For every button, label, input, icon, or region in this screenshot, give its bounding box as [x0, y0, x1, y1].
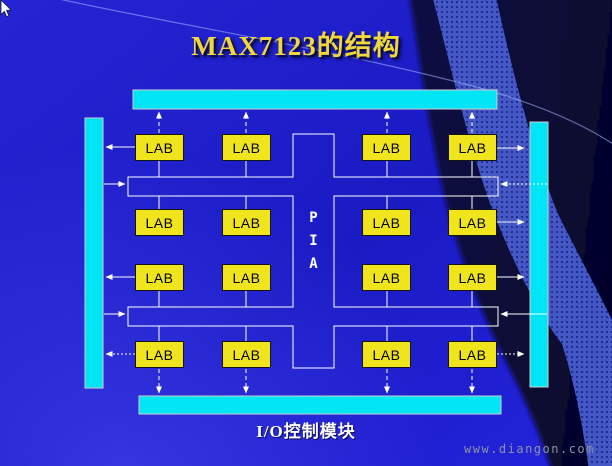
mouse-cursor-icon [0, 0, 14, 19]
lab-block: LAB [448, 209, 497, 236]
slide-title: MAX7123的结构 [96, 24, 496, 60]
left-io-arrows [104, 147, 135, 354]
pia-letter: P [293, 207, 334, 230]
lab-block: LAB [135, 341, 184, 368]
pia-letter: A [293, 253, 334, 276]
watermark-text: www.diangon.com [464, 442, 595, 456]
top-output-arrows [159, 112, 472, 133]
lab-block: LAB [222, 134, 271, 161]
right-io-bar [530, 122, 548, 387]
lab-block: LAB [222, 341, 271, 368]
lab-block: LAB [362, 134, 411, 161]
lab-block: LAB [135, 134, 184, 161]
top-io-bar [133, 90, 497, 109]
bottom-io-bar [139, 396, 501, 414]
left-io-bar [85, 118, 103, 388]
bottom-output-arrows [159, 369, 472, 393]
lab-block: LAB [448, 341, 497, 368]
lab-block: LAB [135, 209, 184, 236]
lab-block: LAB [222, 209, 271, 236]
lab-block: LAB [135, 264, 184, 291]
io-control-caption: I/O控制模块 [206, 417, 406, 442]
pia-label: P I A [293, 207, 334, 276]
lab-block: LAB [448, 264, 497, 291]
presentation-slide[interactable]: MAX7123的结构 LAB LAB LAB LAB LAB LAB LAB L… [0, 0, 612, 466]
lab-block: LAB [362, 264, 411, 291]
lab-block: LAB [448, 134, 497, 161]
pia-letter: I [293, 230, 334, 253]
lab-block: LAB [362, 209, 411, 236]
lab-block: LAB [222, 264, 271, 291]
lab-block: LAB [362, 341, 411, 368]
